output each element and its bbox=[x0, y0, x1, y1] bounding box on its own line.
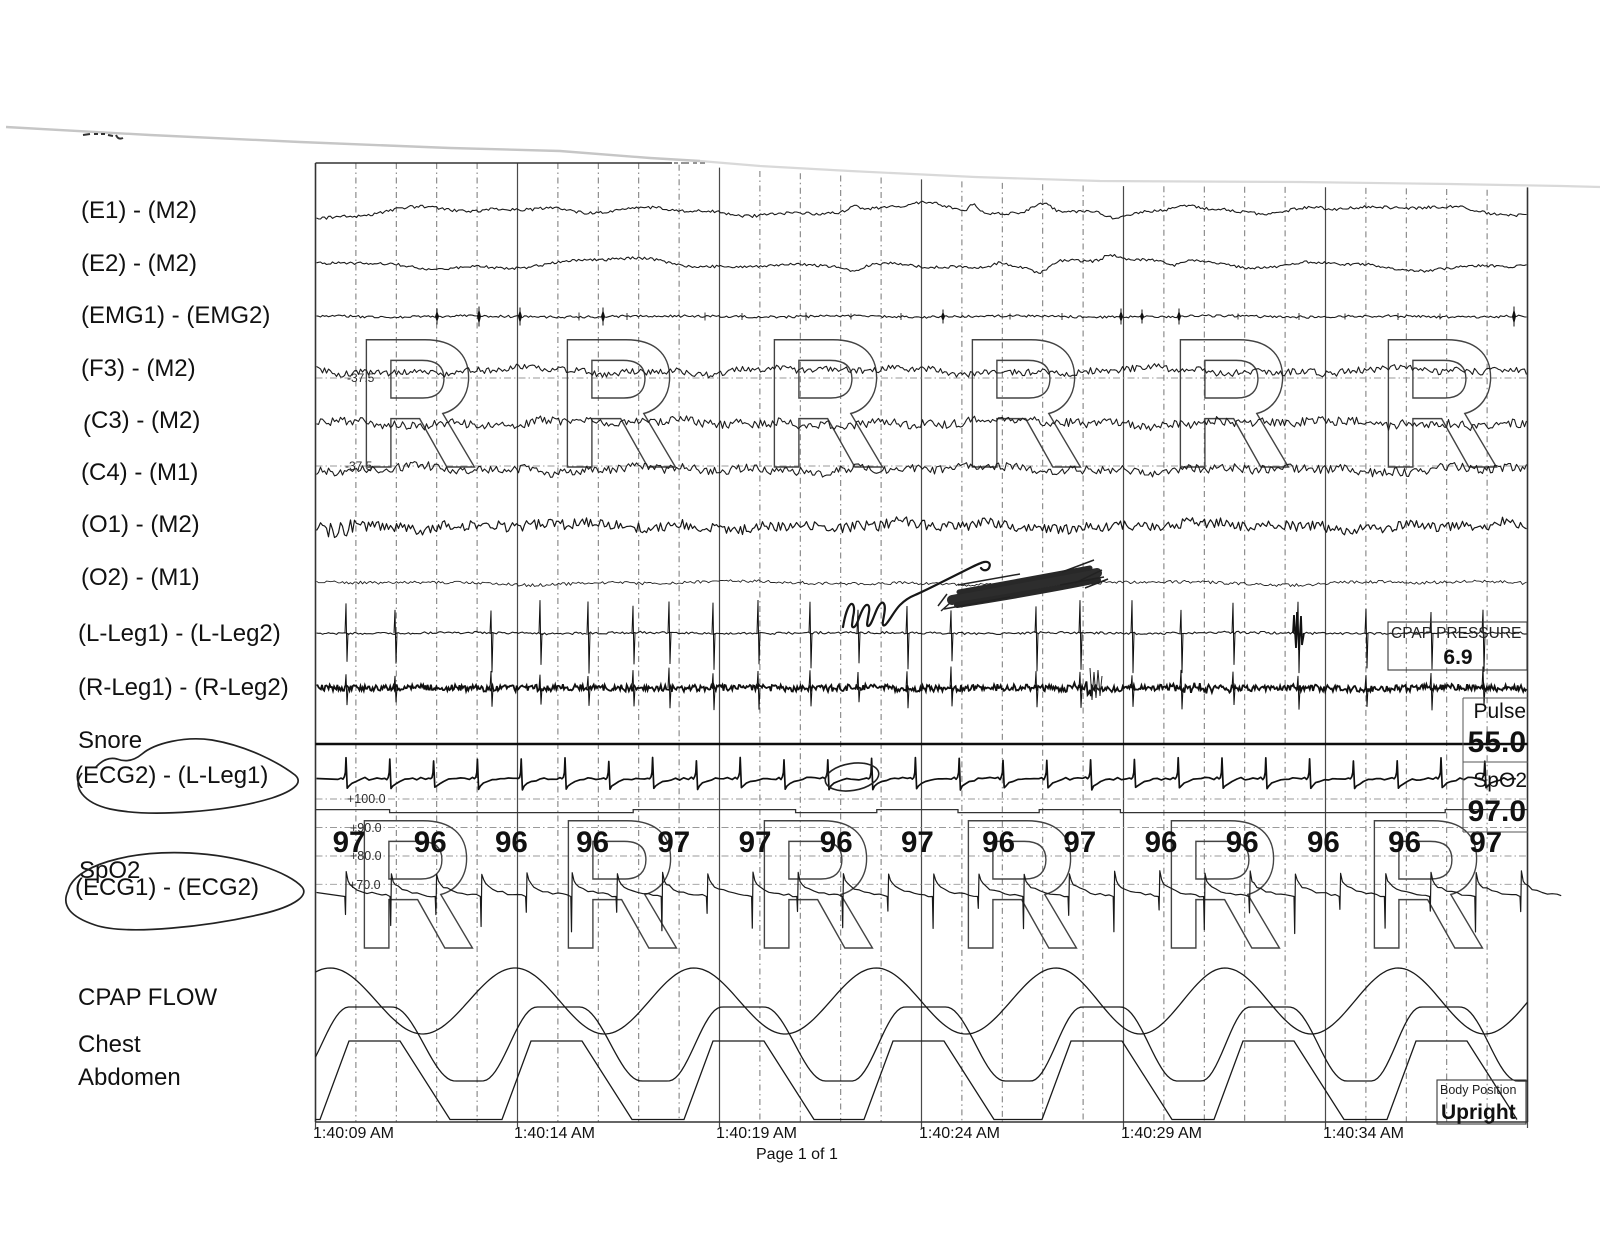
svg-text:55.0: 55.0 bbox=[1468, 726, 1526, 759]
svg-text:97: 97 bbox=[1063, 826, 1096, 859]
svg-text:R: R bbox=[355, 299, 478, 506]
svg-text:97: 97 bbox=[657, 826, 690, 859]
svg-text:R: R bbox=[957, 780, 1080, 987]
svg-text:97: 97 bbox=[739, 826, 772, 859]
svg-text:96: 96 bbox=[1388, 826, 1421, 859]
svg-text:96: 96 bbox=[982, 826, 1015, 859]
svg-text:96: 96 bbox=[576, 826, 609, 859]
svg-text:96: 96 bbox=[1145, 826, 1178, 859]
svg-text:96: 96 bbox=[1307, 826, 1340, 859]
svg-text:96: 96 bbox=[820, 826, 853, 859]
svg-text:R: R bbox=[556, 299, 679, 506]
svg-text:R: R bbox=[353, 780, 476, 987]
svg-text:97: 97 bbox=[901, 826, 934, 859]
svg-text:R: R bbox=[961, 299, 1084, 506]
svg-text:SpO2: SpO2 bbox=[1473, 769, 1527, 792]
svg-text:R: R bbox=[753, 780, 876, 987]
svg-text:CPAP PRESSURE: CPAP PRESSURE bbox=[1391, 625, 1521, 642]
svg-text:Pulse: Pulse bbox=[1473, 700, 1526, 723]
svg-text:Upright: Upright bbox=[1441, 1101, 1516, 1124]
svg-text:Body Position: Body Position bbox=[1440, 1083, 1516, 1097]
svg-text:97: 97 bbox=[1469, 826, 1502, 859]
svg-text:R: R bbox=[1160, 780, 1283, 987]
svg-text:97.0: 97.0 bbox=[1468, 795, 1526, 828]
svg-text:96: 96 bbox=[1226, 826, 1259, 859]
svg-text:96: 96 bbox=[495, 826, 528, 859]
svg-text:96: 96 bbox=[414, 826, 447, 859]
svg-text:6.9: 6.9 bbox=[1443, 646, 1472, 669]
svg-text:R: R bbox=[1377, 299, 1500, 506]
svg-text:97: 97 bbox=[333, 826, 366, 859]
svg-text:R: R bbox=[1169, 299, 1292, 506]
